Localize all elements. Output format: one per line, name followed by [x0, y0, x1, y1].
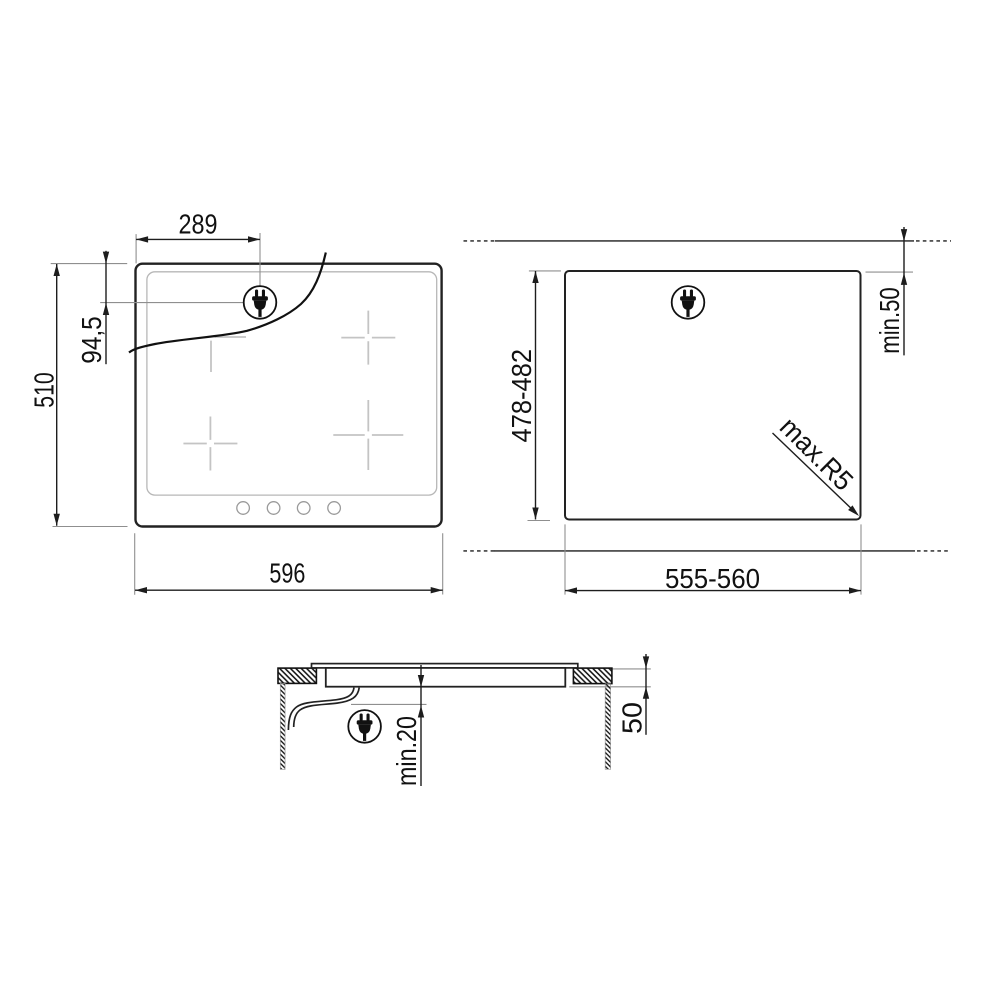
svg-text:555-560: 555-560 — [665, 563, 760, 594]
svg-text:510: 510 — [29, 372, 60, 408]
svg-text:50: 50 — [617, 702, 648, 734]
svg-text:min.50: min.50 — [874, 287, 905, 354]
svg-text:596: 596 — [269, 558, 305, 589]
svg-text:min.20: min.20 — [391, 716, 422, 786]
svg-text:94,5: 94,5 — [76, 316, 107, 364]
svg-text:289: 289 — [179, 208, 218, 239]
svg-text:478-482: 478-482 — [506, 349, 537, 443]
